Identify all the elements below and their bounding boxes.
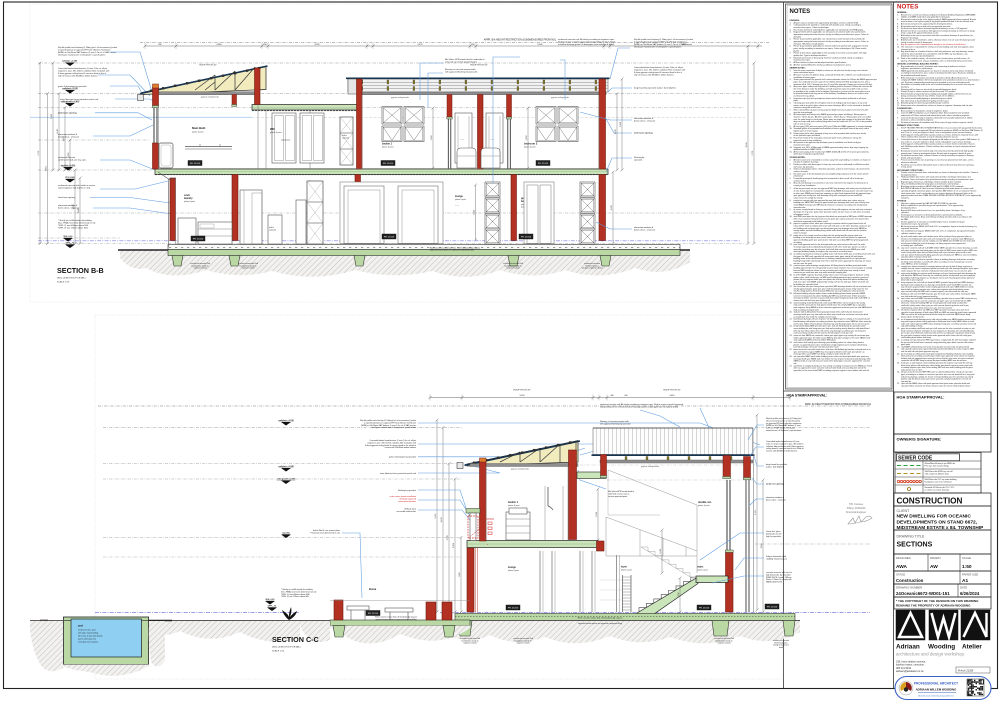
svg-text:DRAWING TITLE: DRAWING TITLE	[897, 535, 926, 539]
svg-text:400: 400	[610, 395, 613, 397]
svg-text:STAGE: STAGE	[896, 573, 905, 577]
svg-text:all to eng. & specialist detai: all to eng. & specialist details.	[78, 635, 103, 638]
svg-text:with 38x38mm timber battens. 1: with 38x38mm timber battens. 110mm cellu…	[901, 145, 975, 148]
svg-text:4,880: 4,880	[216, 44, 222, 46]
svg-text:bedrm 1: bedrm 1	[508, 500, 519, 504]
svg-text:CLIENT: CLIENT	[897, 509, 911, 513]
svg-text:pool: pool	[78, 625, 83, 628]
svg-text:A1: A1	[962, 578, 968, 584]
svg-text:SANS and for on any roof max p: SANS and for on any roof max prior water…	[794, 360, 871, 363]
svg-text:3,590: 3,590	[519, 395, 525, 397]
svg-text:FFL 23.010: FFL 23.010	[767, 607, 778, 609]
svg-text:with approved flashings by spe: with approved flashings by specialist	[445, 71, 478, 74]
svg-text:NGL 0.00: NGL 0.00	[266, 599, 276, 601]
svg-text:←–: ←–	[455, 204, 460, 207]
svg-text:engineer's detail: engineer's detail	[193, 267, 207, 270]
svg-text:(INCLUDING ROOF DETAIL): (INCLUDING ROOF DETAIL)	[57, 277, 86, 280]
svg-text:←–: ←–	[460, 138, 465, 141]
svg-text:NGL 0.00: NGL 0.00	[64, 236, 74, 238]
svg-text:FFL 23.010: FFL 23.010	[699, 608, 710, 610]
svg-text:strictly per manufacturer's &: strictly per manufacturer's & Engineer's…	[634, 46, 681, 49]
svg-text:15.: 15.	[790, 151, 793, 153]
svg-text:All other paintwork/finishes s: All other paintwork/finishes strictly ac…	[794, 63, 852, 66]
svg-text:PROFESSIONAL ARCHITECT: PROFESSIONAL ARCHITECT	[914, 682, 958, 686]
svg-text:plaster & paint: plaster & paint	[382, 146, 394, 149]
svg-text:engineer's detail: engineer's detail	[463, 642, 477, 645]
svg-text:18.: 18.	[790, 293, 793, 295]
svg-text:Lintol over opening: Lintol over opening	[58, 112, 77, 115]
svg-text:*UFFL @ min 170mm above NGL: *UFFL @ min 170mm above NGL	[58, 228, 89, 230]
svg-text:* THE COPYRIGHT OF THE DESIGNS: * THE COPYRIGHT OF THE DESIGNS ON THIS D…	[896, 599, 979, 603]
svg-text:PAPER SIZE: PAPER SIZE	[962, 573, 978, 577]
svg-text:DRAWING NUMBER: DRAWING NUMBER	[896, 586, 922, 590]
svg-text:FFL 23.010: FFL 23.010	[193, 239, 204, 241]
svg-text:plaster & paint: plaster & paint	[455, 198, 466, 201]
svg-text:Re-inforced concrete raft foun: Re-inforced concrete raft foundation wit…	[901, 121, 974, 124]
svg-text:2,745: 2,745	[611, 204, 613, 210]
svg-text:approved building paint spec p: approved building paint spec paint plast…	[794, 238, 869, 241]
svg-text:double vol.: double vol.	[698, 500, 712, 504]
svg-text:municipal sewer system.: municipal sewer system.	[78, 641, 99, 644]
svg-text:selected plaster with drip li: selected plaster with drip line in slab	[58, 187, 91, 190]
svg-text:10.: 10.	[790, 128, 793, 130]
svg-text:90mm concrete surface bed, raf: 90mm concrete surface bed, raft foundati…	[375, 616, 417, 619]
svg-text:wallplate +2.745: wallplate +2.745	[62, 87, 78, 90]
svg-text:*UFFL @ min 170mm above NGL: *UFFL @ min 170mm above NGL	[281, 596, 309, 598]
svg-text:5,851: 5,851	[46, 165, 48, 171]
svg-text:3,244: 3,244	[761, 543, 763, 549]
svg-text:5,810: 5,810	[669, 395, 675, 397]
svg-text:pool to discharge into: pool to discharge into	[78, 638, 96, 641]
svg-text:13.: 13.	[790, 142, 793, 144]
svg-text:cupboard: cupboard	[342, 136, 349, 139]
svg-text:22.: 22.	[790, 326, 793, 328]
svg-text:specialist timber any fixed si: specialist timber any fixed site fixed c…	[901, 385, 970, 388]
svg-text:side of trusses with 38x38mm t: side of trusses with 38x38mm timber batt…	[58, 75, 98, 78]
svg-text:cladding: Stained natural: cladding: Stained natural	[766, 557, 787, 560]
svg-text:plaster & paint: plaster & paint	[698, 504, 710, 507]
svg-text:gypsum ceiling boards: gypsum ceiling boards	[201, 97, 219, 99]
svg-text:FFL 23.010: FFL 23.010	[384, 237, 395, 239]
svg-text:casting of any foundations.: casting of any foundations.	[794, 184, 817, 187]
svg-text:reinforced conc. pool: reinforced conc. pool	[78, 629, 96, 632]
svg-text:nutec fibre/cmt facias painted: nutec fibre/cmt facias painted to match …	[380, 472, 417, 475]
svg-text:90mm concrete surface bed, raf: 90mm concrete surface bed, raft foundati…	[578, 616, 623, 619]
svg-text:doors colour - Charcoal: doors colour - Charcoal	[58, 137, 79, 139]
svg-text:as shown on various drawings: as shown on various drawings	[925, 488, 950, 491]
svg-text:ceiling/soffit +2.413: ceiling/soffit +2.413	[61, 100, 80, 103]
svg-text:lounge: lounge	[508, 566, 517, 569]
svg-text:Adriaan: Adriaan	[896, 644, 920, 651]
svg-text:PVC wp's from various fittings: PVC wp's from various fittings	[925, 464, 950, 467]
svg-text:strictly per manufacturer's &: strictly per manufacturer's & engineer's…	[372, 426, 416, 429]
svg-text:cantilevered slab, per eng. sp: cantilevered slab, per eng. spec.	[58, 159, 87, 162]
svg-text:1,504: 1,504	[431, 135, 433, 141]
svg-text:wallplate +3.345: wallplate +3.345	[62, 60, 78, 63]
svg-text:20.: 20.	[790, 312, 793, 314]
svg-text:23.: 23.	[790, 335, 793, 337]
svg-text:approved termite poison on ap: approved termite poison on approved comp…	[430, 249, 474, 252]
svg-text:ROOF PITCH 10°: ROOF PITCH 10°	[470, 65, 487, 67]
svg-text:side of trusses with 38x38mm t: side of trusses with 38x38mm timber batt…	[634, 74, 674, 77]
svg-text:SCALE 1:50: SCALE 1:50	[57, 281, 70, 284]
svg-text:to eng. detail.: to eng. detail.	[901, 166, 913, 169]
svg-text:Construction: Construction	[896, 578, 924, 583]
svg-text:DRAWN: DRAWN	[930, 556, 940, 560]
svg-text:6/26/2024: 6/26/2024	[960, 591, 980, 596]
svg-text:ADRIAAN WILLEM WOODING: ADRIAAN WILLEM WOODING	[916, 688, 958, 692]
svg-text:architecture and design worksh: architecture and design workshop	[896, 652, 964, 657]
svg-text:12.: 12.	[790, 235, 793, 237]
svg-text:3,258: 3,258	[620, 121, 622, 127]
svg-text:FFL 23.010: FFL 23.010	[383, 163, 394, 165]
svg-text:AW: AW	[930, 564, 938, 570]
svg-text:7,176: 7,176	[38, 150, 40, 156]
svg-text:receive approved paint: receive approved paint	[608, 495, 628, 498]
svg-text:gypsum ceiling boards: gypsum ceiling boards	[641, 466, 659, 468]
svg-text:DESIGNED: DESIGNED	[896, 556, 911, 560]
svg-text:26.: 26.	[790, 356, 793, 358]
svg-text:specialist: specialist	[634, 159, 643, 162]
svg-text:cylinders outside in cage.: cylinders outside in cage.	[901, 232, 922, 235]
svg-text:bedroom 2: bedroom 2	[524, 142, 538, 146]
svg-text:WIC: WIC	[270, 127, 275, 131]
svg-text:SCALE: SCALE	[962, 556, 971, 560]
svg-text:13.: 13.	[790, 244, 793, 246]
svg-text:doors colour - Charcoal: doors colour - Charcoal	[58, 208, 79, 210]
svg-text:waterproofing @ min 1:50 fall: waterproofing @ min 1:50 fall to built-i…	[600, 405, 678, 408]
svg-text:gypsum ceiling boards: gypsum ceiling boards	[391, 97, 409, 99]
svg-text:gutter & downpipes by speciali: gutter & downpipes by specialist	[389, 456, 416, 459]
svg-text:27.: 27.	[790, 365, 793, 367]
svg-text:glazing, all electrical work,: glazing, all electrical work, any gas in…	[901, 59, 973, 62]
svg-text:Atelier: Atelier	[962, 644, 982, 651]
svg-text:plaster & paint: plaster & paint	[192, 130, 204, 133]
svg-text:wallplate +2.745: wallplate +2.745	[278, 419, 294, 422]
svg-text:19.: 19.	[790, 302, 793, 304]
svg-text:14.: 14.	[790, 147, 793, 149]
svg-text:25.: 25.	[790, 349, 793, 351]
svg-text:foundations over to be reinfor: foundations over to be reinforced	[925, 480, 952, 483]
svg-text:plaster & paint: plaster & paint	[697, 569, 708, 572]
svg-text:ROOF PITCH 10°: ROOF PITCH 10°	[663, 390, 680, 392]
svg-text:bedrm 1: bedrm 1	[382, 142, 393, 146]
svg-text:OWNER/S SIGNATURE:: OWNER/S SIGNATURE:	[897, 437, 942, 442]
svg-text:plaster & paint: plaster & paint	[184, 200, 195, 203]
svg-text:REMAINS THE PROPERTY OF ADRIAA: REMAINS THE PROPERTY OF ADRIAAN WOODING	[896, 604, 971, 608]
svg-text:FFL 23.010: FFL 23.010	[190, 163, 201, 165]
svg-text:2,745: 2,745	[615, 128, 617, 134]
svg-text:with approved flashings by spe: with approved flashings by specialist	[600, 422, 631, 425]
svg-text:1:60, u/side min 400mm deep: 1:60, u/side min 400mm deep	[925, 473, 949, 475]
svg-text:4,616: 4,616	[441, 516, 443, 522]
svg-text:DATE: DATE	[960, 586, 967, 590]
svg-text:14.: 14.	[790, 253, 793, 255]
svg-text:SCALE 1:50: SCALE 1:50	[272, 650, 285, 653]
svg-text:FFL 23.010: FFL 23.010	[521, 237, 532, 239]
svg-text:accessible vertical duct: accessible vertical duct	[397, 510, 417, 513]
svg-text:foyer: foyer	[621, 566, 627, 569]
svg-text:3,345: 3,345	[51, 113, 53, 119]
svg-text:engineer's detail: engineer's detail	[241, 267, 255, 270]
svg-text:conc.roof, to receive approved: conc.roof, to receive approved paint	[445, 61, 477, 64]
svg-text:plaster & paint: plaster & paint	[270, 131, 282, 134]
svg-text:high, by specialist: high, by specialist	[766, 535, 781, 538]
svg-text:FFL 23.010: FFL 23.010	[368, 613, 379, 615]
svg-text:SECTION B-B: SECTION B-B	[57, 266, 104, 275]
svg-text:engineer's detail: engineer's detail	[516, 642, 530, 645]
svg-text:Standards built in braai. Braa: Standards built in braai. Braai and chim…	[901, 216, 972, 219]
svg-text:to built-in drainage gutter's: to built-in drainage gutter's & downpipe…	[558, 43, 615, 46]
svg-text:Flashing by specialist: Flashing by specialist	[398, 489, 416, 492]
svg-text:No storm water to be discharge: No storm water to be discharged over any…	[794, 172, 869, 175]
svg-text:Main Bath: Main Bath	[192, 126, 206, 130]
svg-text:FFL 23.010: FFL 23.010	[538, 163, 549, 165]
svg-text:24.: 24.	[790, 342, 793, 344]
svg-text:4,930: 4,930	[314, 44, 320, 46]
svg-text:HOA STAMP/APPROVAL:: HOA STAMP/APPROVAL:	[897, 395, 945, 400]
svg-text:trusses with 38x38mm timber ba: trusses with 38x38mm timber battens	[385, 446, 416, 449]
svg-text:Wooding: Wooding	[928, 644, 955, 651]
svg-text:2,470: 2,470	[417, 44, 423, 46]
svg-text:17.: 17.	[790, 286, 793, 288]
svg-text:the per max fall install water: the per max fall install water municipal…	[901, 341, 973, 344]
svg-text:H.B. Coetsee: H.B. Coetsee	[849, 503, 864, 506]
svg-text:lounge: lounge	[455, 195, 464, 198]
svg-text:laundry: laundry	[184, 197, 193, 200]
svg-text:15.: 15.	[790, 265, 793, 267]
svg-text:approved termite poison on ap: approved termite poison on approved comp…	[376, 618, 417, 621]
svg-text:SEWER CODE: SEWER CODE	[898, 455, 933, 461]
svg-text:ROOF PITCH 10°: ROOF PITCH 10°	[513, 390, 530, 392]
svg-text:approved termite poison on ap: approved termite poison on approved comp…	[578, 622, 622, 625]
svg-text:(INCLUDING ROOF DETAIL): (INCLUDING ROOF DETAIL)	[272, 646, 301, 649]
svg-text:strictly to engineer's detail: strictly to engineer's detail	[582, 267, 603, 270]
svg-text:engineer's detail: engineer's detail	[506, 267, 520, 270]
svg-text:NOTES: NOTES	[790, 9, 811, 15]
svg-text:Lintol over opening: Lintol over opening	[58, 196, 75, 199]
svg-text:8,910: 8,910	[746, 141, 748, 147]
svg-text:(colour: dark dolphin): (colour: dark dolphin)	[766, 465, 784, 468]
svg-text:doors colour - Charcoal: doors colour - Charcoal	[634, 230, 655, 232]
svg-text:10.: 10.	[790, 64, 793, 66]
svg-text:200: 200	[624, 395, 627, 397]
svg-text:paint, strictly according to m: paint, strictly according to manufacture…	[794, 47, 867, 50]
svg-text:←–: ←–	[490, 138, 495, 141]
svg-text:1,504: 1,504	[474, 209, 476, 215]
svg-text:APPR. B/A HEIGHT RESTRICTION (: APPR. B/A HEIGHT RESTRICTION (8.5M)MEASU…	[484, 39, 557, 42]
svg-text:professional plumber: professional plumber	[398, 500, 416, 503]
svg-text:Final level to be determined o: Final level to be determined on site	[311, 531, 340, 534]
svg-text:21.: 21.	[790, 319, 793, 321]
svg-text:1,504: 1,504	[678, 592, 680, 598]
svg-text:properly sanded and oiled. FIN: properly sanded and oiled. FINAL DESIGN …	[901, 194, 981, 197]
svg-text:ceiling/soffit +2.256: ceiling/soffit +2.256	[277, 477, 296, 480]
svg-text:alternative energy (heat-pump/: alternative energy (heat-pump/solar).	[794, 153, 825, 156]
svg-text:paint be slab the board sewer: paint be slab the board sewer paint sewe…	[901, 378, 971, 381]
svg-text:wallplate +2.345: wallplate +2.345	[278, 465, 294, 468]
svg-text:manufacturer's & Engineer's sp: manufacturer's & Engineer's specificatio…	[766, 429, 802, 432]
svg-text:UFFL -75: UFFL -75	[268, 605, 277, 607]
svg-text:plaster & paint: plaster & paint	[508, 569, 519, 572]
svg-text:3,745: 3,745	[447, 534, 449, 540]
svg-text:ROOF PITCH 10°: ROOF PITCH 10°	[199, 65, 216, 67]
svg-text:PrArch 21356: PrArch 21356	[958, 669, 974, 672]
svg-text:NEW DWELLING FOR OCEANIC: NEW DWELLING FOR OCEANIC	[897, 514, 972, 520]
svg-text:specialist as the sewer instal: specialist as the sewer install NBR acco…	[794, 369, 870, 372]
svg-text:Inspection eyes (ie) to be pro: Inspection eyes (ie) to be provided as s…	[794, 97, 867, 100]
svg-text:stairs: stairs	[697, 566, 704, 569]
svg-text:Lintol over opening: Lintol over opening	[634, 132, 653, 135]
svg-text:2,256: 2,256	[453, 542, 455, 548]
svg-text:architect).: architect).	[901, 196, 910, 199]
svg-text:CONSTRUCTION: CONSTRUCTION	[897, 497, 963, 506]
svg-text:Boma: Boma	[369, 587, 377, 591]
svg-text:top/slab: top/slab	[282, 531, 290, 534]
svg-text:24Oceanic6672-WD01-151: 24Oceanic6672-WD01-151	[896, 591, 950, 596]
svg-text:SANS 0400 Part M: SANS 0400 Part M	[766, 581, 782, 584]
svg-text:HGA STAMP/APPROVAL:: HGA STAMP/APPROVAL:	[787, 394, 828, 398]
svg-text:UFFL -75: UFFL -75	[66, 242, 75, 244]
svg-text:1,000: 1,000	[459, 571, 461, 577]
svg-text:gypsum ceiling boards: gypsum ceiling boards	[551, 97, 569, 99]
svg-text:appropriate waterproof externa: appropriate waterproof external paint, s…	[794, 33, 869, 36]
svg-text:plaster & paint: plaster & paint	[524, 146, 536, 149]
svg-text:with appr. waterproofing,: with appr. waterproofing,	[78, 632, 99, 635]
svg-text:1:50: 1:50	[962, 564, 972, 570]
svg-text:WMD. 6A HEIGHT RESTRICTION (8.: WMD. 6A HEIGHT RESTRICTION (8.5)MEASURED…	[805, 403, 872, 406]
svg-text:1,504: 1,504	[596, 511, 598, 517]
svg-text:Lintol over opening: Lintol over opening	[766, 483, 784, 486]
svg-text:FFL 23.010: FFL 23.010	[508, 608, 519, 610]
svg-text:plaster & paint: plaster & paint	[508, 504, 520, 507]
svg-text:5,161: 5,161	[755, 509, 757, 515]
svg-text:cupboard: cupboard	[269, 228, 276, 231]
svg-text:12.: 12.	[790, 137, 793, 139]
svg-text:NOTES: NOTES	[897, 4, 918, 11]
svg-text:1,504: 1,504	[526, 135, 528, 141]
svg-text:5,161: 5,161	[435, 513, 437, 519]
svg-text:detail: detail	[779, 646, 784, 649]
svg-text:doors colour - Charcoal: doors colour - Charcoal	[634, 121, 655, 123]
svg-text:adriaan@awatelier.co.za: adriaan@awatelier.co.za	[896, 670, 924, 673]
svg-text:SECTION C-C: SECTION C-C	[272, 635, 319, 644]
svg-text:barge board by specialist (col: barge board by specialist (colour: dark …	[634, 87, 676, 90]
svg-text:DEVELOPMENTS ON STAND 6672,: DEVELOPMENTS ON STAND 6672,	[897, 519, 978, 525]
svg-text:AWA: AWA	[896, 564, 907, 570]
svg-text:16.: 16.	[790, 274, 793, 276]
svg-text:doors colour - Charcoal: doors colour - Charcoal	[766, 498, 786, 501]
svg-text:7,176: 7,176	[752, 150, 754, 156]
svg-text:engineer's detail: engineer's detail	[717, 642, 731, 645]
svg-text:strictly per manufacturer's &: strictly per manufacturer's & Engineer's…	[58, 54, 105, 57]
svg-text:plaster & paint: plaster & paint	[621, 569, 632, 572]
svg-text:Foundation to boundary walls a: Foundation to boundary walls at the site…	[901, 83, 974, 86]
svg-text:1,022: 1,022	[660, 548, 662, 554]
svg-text:5,960: 5,960	[537, 44, 543, 46]
svg-text:Storm water to be channeled on: Storm water to be channeled on surface a…	[901, 104, 973, 107]
svg-text:SECTIONS: SECTIONS	[897, 542, 933, 549]
svg-text:Structural Engineer: Structural Engineer	[846, 511, 867, 514]
svg-text:trusses with 38x38mm timber ba: trusses with 38x38mm timber battens	[766, 450, 797, 453]
svg-text:FFL 0.000: FFL 0.000	[65, 177, 75, 179]
svg-text:10.: 10.	[790, 216, 793, 218]
svg-text:gypsum ceiling boards: gypsum ceiling boards	[511, 469, 529, 471]
svg-text:A grate SKD doors and electric: A grate SKD doors and electrical cars / …	[901, 209, 965, 212]
svg-text:top/slab +0.010: top/slab +0.010	[61, 164, 76, 167]
svg-text:PrEng: 20100420: PrEng: 20100420	[847, 507, 866, 510]
